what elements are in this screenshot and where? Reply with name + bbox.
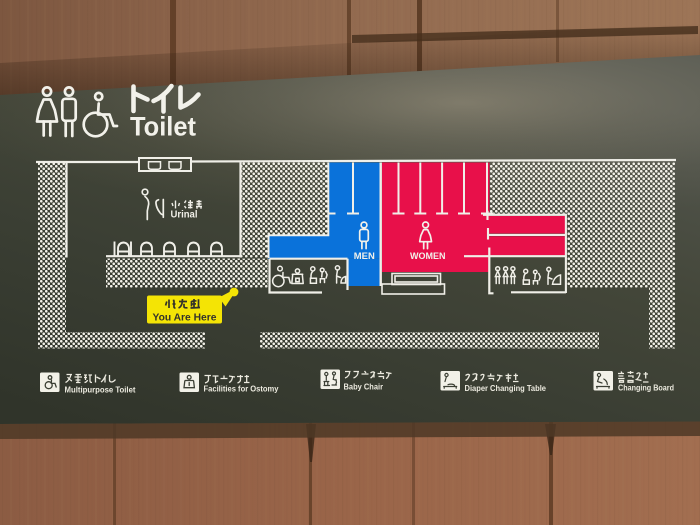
svg-text:Baby Chair: Baby Chair [344,383,384,392]
svg-text:Changing Board: Changing Board [618,384,674,393]
svg-text:Multipurpose Toilet: Multipurpose Toilet [65,386,136,395]
svg-text:Toilet: Toilet [130,112,196,142]
svg-text:Urinal: Urinal [171,210,198,221]
svg-text:You Are Here: You Are Here [153,313,217,324]
svg-text:MEN: MEN [354,251,375,261]
svg-text:Diaper Changing Table: Diaper Changing Table [465,384,547,393]
svg-text:Facilities for Ostomy: Facilities for Ostomy [204,385,280,394]
svg-text:WOMEN: WOMEN [410,251,446,261]
